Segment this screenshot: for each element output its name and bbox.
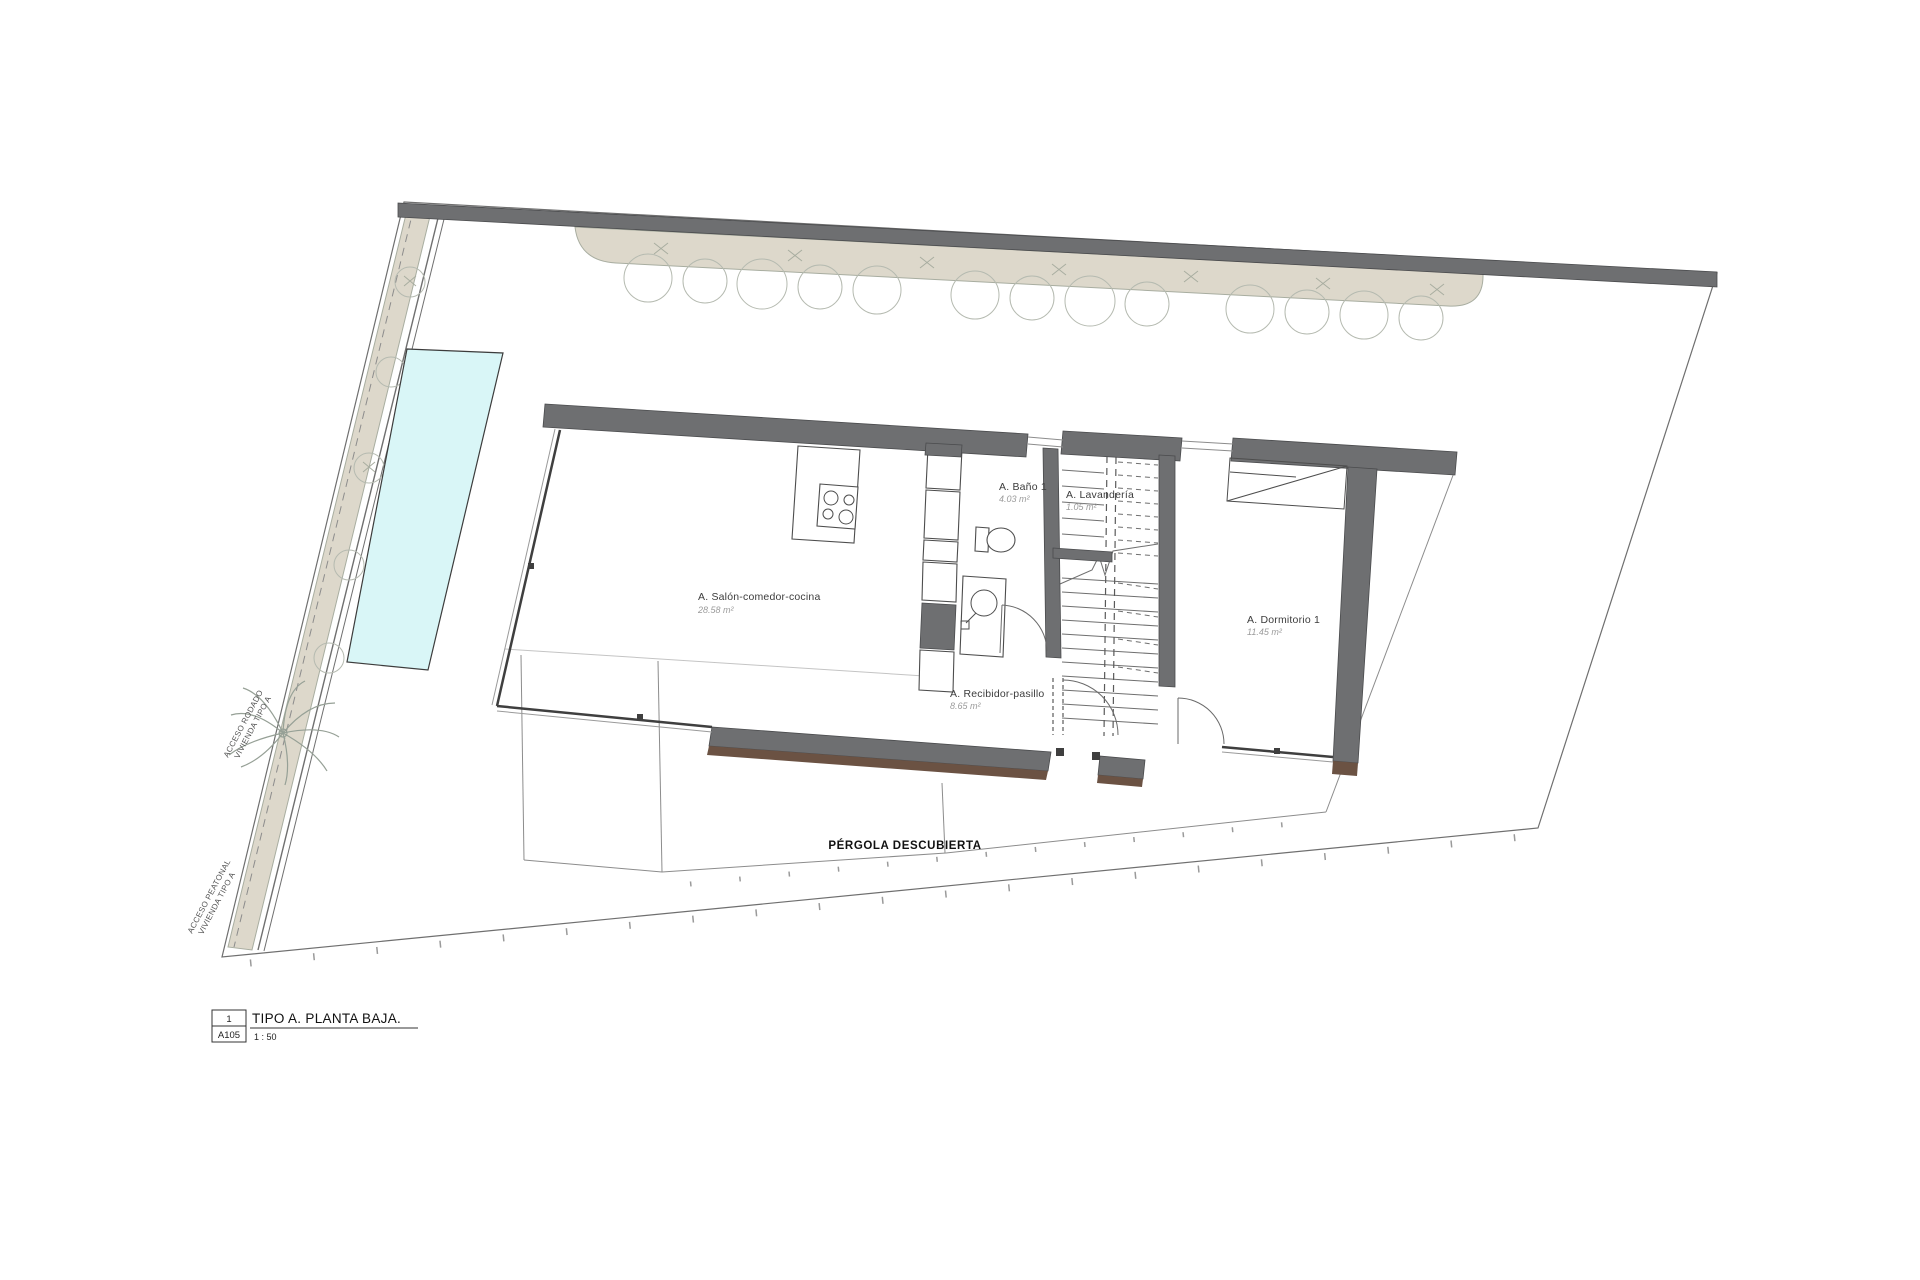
- drawing-scale: 1 : 50: [254, 1032, 277, 1042]
- sheet-code: A105: [218, 1030, 240, 1041]
- window-mullion: [528, 563, 534, 569]
- cooktop: [817, 484, 858, 529]
- entrance-side-wall: [1098, 756, 1145, 779]
- vanity: [960, 576, 1006, 657]
- sheet-detail-number: 1: [226, 1014, 231, 1025]
- room-area-dormitorio: 11.45 m²: [1247, 627, 1283, 637]
- toilet-bowl: [987, 528, 1015, 552]
- window-mullion: [637, 714, 643, 720]
- room-label-dormitorio: A. Dormitorio 1: [1247, 614, 1320, 626]
- room-area-lavanderia: 1.05 m²: [1066, 502, 1098, 512]
- room-label-bano: A. Baño 1: [999, 481, 1047, 493]
- stair-bedroom-wall: [1159, 455, 1175, 687]
- room-area-salon: 28.58 m²: [697, 605, 735, 615]
- floor-plan-canvas: A. Salón-comedor-cocina 28.58 m² A. Baño…: [0, 0, 1920, 1280]
- access-road-label: ACCESO RODADO VIVIENDA TIPO A: [222, 688, 274, 763]
- room-area-recibidor: 8.65 m²: [950, 701, 982, 711]
- kitchen-stub-wall: [925, 443, 962, 457]
- room-area-bano: 4.03 m²: [999, 494, 1031, 504]
- room-label-lavanderia: A. Lavandería: [1066, 489, 1134, 501]
- pergola-label: PÉRGOLA DESCUBIERTA: [828, 839, 981, 852]
- drawing-title: TIPO A. PLANTA BAJA.: [252, 1011, 401, 1026]
- window-mullion: [1274, 748, 1280, 754]
- title-block: 1 A105 TIPO A. PLANTA BAJA. 1 : 50: [212, 1010, 418, 1042]
- room-label-recibidor: A. Recibidor-pasillo: [950, 688, 1044, 700]
- room-label-salon: A. Salón-comedor-cocina: [698, 591, 821, 603]
- kitchen-tall-unit: [920, 603, 956, 650]
